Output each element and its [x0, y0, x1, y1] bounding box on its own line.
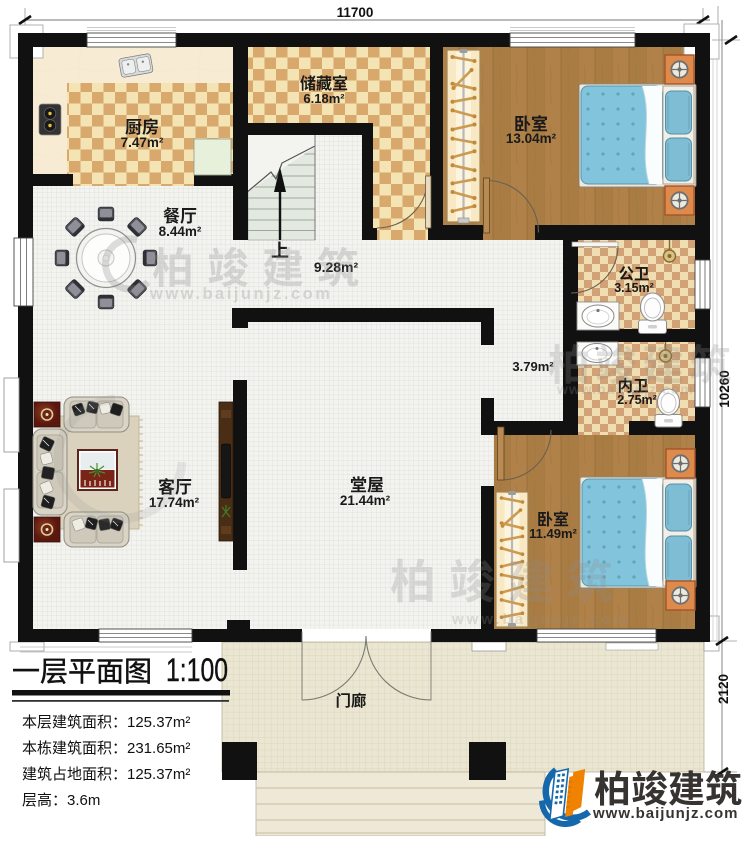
svg-text:11700: 11700: [337, 5, 374, 20]
svg-text:8.44m²: 8.44m²: [159, 224, 202, 239]
svg-text:门廊: 门廊: [335, 691, 366, 710]
svg-text:21.44m²: 21.44m²: [340, 493, 391, 508]
svg-text:11.49m²: 11.49m²: [529, 526, 577, 541]
svg-text:6.18m²: 6.18m²: [303, 91, 345, 106]
svg-text:建筑占地面积：125.37m²: 建筑占地面积：125.37m²: [22, 766, 190, 783]
svg-text:www.baijunjz.com: www.baijunjz.com: [149, 285, 332, 303]
svg-text:一层平面图: 一层平面图: [12, 656, 152, 687]
svg-text:柏竣建筑: 柏竣建筑: [594, 769, 742, 810]
svg-text:柏竣建筑: 柏竣建筑: [390, 556, 626, 608]
svg-text:7.47m²: 7.47m²: [121, 135, 164, 150]
svg-text:3.15m²: 3.15m²: [614, 281, 654, 295]
svg-text:www.baijunjz.com: www.baijunjz.com: [556, 381, 694, 397]
svg-text:www.baijunjz.com: www.baijunjz.com: [451, 611, 629, 628]
svg-text:13.04m²: 13.04m²: [506, 131, 557, 146]
svg-text:1:100: 1:100: [166, 652, 228, 688]
svg-text:本栋建筑面积：231.65m²: 本栋建筑面积：231.65m²: [22, 739, 190, 757]
svg-text:层高：3.6m: 层高：3.6m: [22, 792, 100, 809]
svg-text:2120: 2120: [716, 674, 731, 704]
svg-text:本层建筑面积：125.37m²: 本层建筑面积：125.37m²: [22, 714, 190, 731]
svg-text:www.baijunjz.com: www.baijunjz.com: [592, 805, 738, 822]
